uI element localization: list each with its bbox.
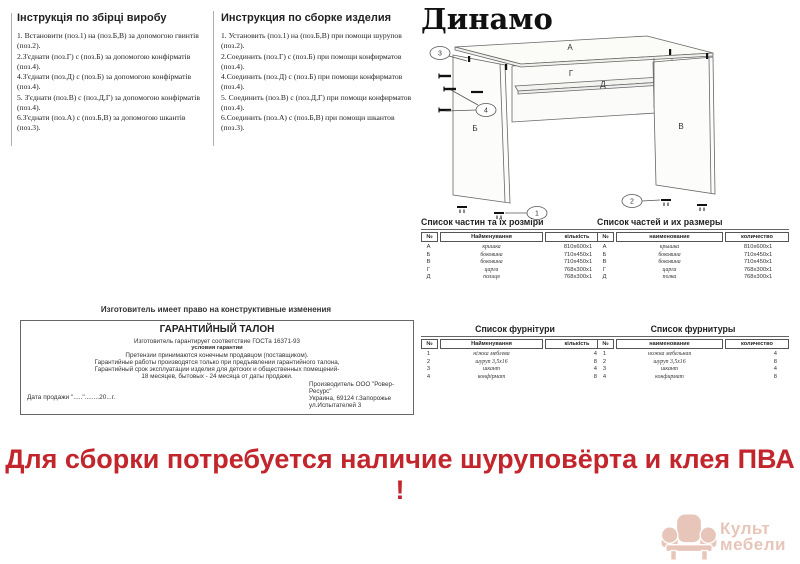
step: 6.Соединить (поз.А) с (поз.Б,В) при помо… (221, 113, 417, 134)
col-num: № (421, 232, 438, 242)
cell: В (597, 259, 612, 267)
cell: 4 (421, 374, 436, 382)
cell: конфирмат (614, 374, 725, 382)
cell: ніжка меблева (438, 351, 545, 359)
cell: боковина (438, 259, 545, 267)
cell: царга (614, 267, 725, 275)
dowel-pin-icon (505, 64, 507, 70)
manufacturer-notice: Изготовитель имеет право на конструктивн… (20, 305, 412, 314)
cell: 710х450х1 (727, 259, 789, 267)
cell: 710х450х1 (727, 252, 789, 260)
callout-2-number: 2 (630, 199, 634, 206)
foot-icon (697, 205, 707, 211)
warranty-line: Изготовитель гарантирует соответствие ГО… (21, 338, 413, 345)
callout-4-number: 4 (484, 108, 488, 115)
step: 5. З'єднати (поз.В) с (поз.Д,Г) за допом… (17, 93, 209, 114)
table-header: № Найменування кількість (421, 232, 609, 242)
table-header: № Найменування кількість (421, 339, 609, 349)
foot-icon (661, 200, 671, 206)
warranty-conditions-heading: условия гарантии (21, 345, 413, 352)
cell: боковина (614, 252, 725, 260)
cell: В (421, 259, 436, 267)
sale-date-field: Дата продажи "....."........20...г. (27, 394, 115, 401)
cell: полка (614, 274, 725, 282)
foot-icon (457, 207, 467, 213)
table-row: Г царга 768х300х1 (421, 267, 609, 275)
cell: А (421, 244, 436, 252)
brand-name: Культ мебели (720, 521, 786, 553)
table-row: 1 ножка мебельная 4 (597, 351, 789, 359)
assembly-diagram: 3 4 1 2 А Г Д Б В (420, 28, 792, 220)
panel-v (653, 57, 715, 194)
step: 1. Встановити (поз.1) на (поз.Б,В) за до… (17, 31, 209, 52)
table-row: 4 конфирмат 8 (597, 374, 789, 382)
cell: 4 (597, 374, 612, 382)
brand-name-line2: мебели (720, 537, 786, 553)
parts-table-ru-title: Список частей и их размеры (597, 217, 789, 230)
table-row: 2 шуруп 3,5х16 8 (597, 359, 789, 367)
panel-b (453, 55, 510, 203)
hardware-table-ua: Список фурнітури № Найменування кількіст… (421, 324, 609, 381)
table-row: В боковина 710х450х1 (421, 259, 609, 267)
step: 1. Установить (поз.1) на (поз.Б,В) при п… (221, 31, 417, 52)
producer-block: Производитель ООО "Ровер-Ресурс" Украина… (309, 381, 413, 409)
diagram-label-d: Д (600, 80, 606, 89)
callout-3-number: 3 (438, 51, 442, 58)
table-row: А крышка 810х600х1 (597, 244, 789, 252)
col-name: Найменування (440, 232, 543, 242)
parts-table-ru: Список частей и их размеры № наименовани… (597, 217, 789, 282)
warranty-line: Претензии принимаются конечным продавцом… (21, 352, 413, 359)
cell: шкант (614, 366, 725, 374)
step: 6.З'єднати (поз.А) с (поз.Б,В) за допомо… (17, 113, 209, 134)
table-header: № наименование количество (597, 339, 789, 349)
parts-table-ua: Список частин та їх розміри № Найменуван… (421, 217, 609, 282)
cell: боковина (438, 252, 545, 260)
armchair-icon (660, 512, 718, 562)
producer-city: Украина, 69124 г.Запорожье (309, 395, 413, 402)
cell: 1 (597, 351, 612, 359)
table-row: А кришка 810х600х1 (421, 244, 609, 252)
cell: конфірмат (438, 374, 545, 382)
cell: 2 (421, 359, 436, 367)
cell: 768х300х1 (727, 274, 789, 282)
warranty-card: ГАРАНТИЙНЫЙ ТАЛОН Изготовитель гарантиру… (20, 320, 414, 415)
cell: 810х600х1 (727, 244, 789, 252)
diagram-label-b: Б (472, 124, 477, 133)
diagram-label-a: А (567, 43, 573, 52)
cell: полиця (438, 274, 545, 282)
table-row: 4 конфірмат 8 (421, 374, 609, 382)
table-row: В боковина 710х450х1 (597, 259, 789, 267)
diagram-label-v: В (678, 122, 683, 131)
dowel-pin-icon (706, 53, 708, 59)
hardware-table-ua-title: Список фурнітури (421, 324, 609, 337)
table-row: Г царга 768х300х1 (597, 267, 789, 275)
cell: 4 (727, 366, 789, 374)
table-row: 3 шкант 4 (421, 366, 609, 374)
cell: 3 (597, 366, 612, 374)
cell: Г (421, 267, 436, 275)
cell: кришка (438, 244, 545, 252)
cell: Б (597, 252, 612, 260)
parts-table-ua-title: Список частин та їх розміри (421, 217, 609, 230)
table-row: Д полиця 768х300х1 (421, 274, 609, 282)
cell: крышка (614, 244, 725, 252)
cell: 8 (727, 374, 789, 382)
step: 2.Соединить (поз.Г) с (поз.Б) при помощи… (221, 52, 417, 73)
cell: А (597, 244, 612, 252)
table-row: 1 ніжка меблева 4 (421, 351, 609, 359)
warranty-line: Гарантийные работы производятся только п… (21, 359, 413, 366)
producer-name: Производитель ООО "Ровер-Ресурс" (309, 381, 413, 395)
table-row: 3 шкант 4 (597, 366, 789, 374)
cell: 1 (421, 351, 436, 359)
instructions-ua-title: Інструкція по збірці виробу (17, 12, 209, 24)
instructions-ua: Інструкція по збірці виробу 1. Встановит… (17, 12, 209, 134)
step: 4.З'єднати (поз.Д) с (поз.Б) за допомого… (17, 72, 209, 93)
hardware-table-ru-title: Список фурнитуры (597, 324, 789, 337)
step: 4.Соединить (поз.Д) с (поз.Б) при помощи… (221, 72, 417, 93)
step: 5. Соединить (поз.В) с (поз.Д,Г) при пом… (221, 93, 417, 114)
step: 2.З'єднати (поз.Г) с (поз.Б) за допомого… (17, 52, 209, 73)
table-row: Д полка 768х300х1 (597, 274, 789, 282)
col-name: Найменування (440, 339, 543, 349)
cell: 8 (727, 359, 789, 367)
cell: шуруп 3,5х16 (614, 359, 725, 367)
table-row: 2 шуруп 3,5х16 8 (421, 359, 609, 367)
col-name: наименование (616, 339, 723, 349)
cell: 3 (421, 366, 436, 374)
table-row: Б боковина 710х450х1 (597, 252, 789, 260)
instructions-ua-steps: 1. Встановити (поз.1) на (поз.Б,В) за до… (17, 31, 209, 134)
table-header: № наименование количество (597, 232, 789, 242)
dowel-pin-icon (669, 49, 671, 55)
cell: шкант (438, 366, 545, 374)
instruction-sheet: Інструкція по збірці виробу 1. Встановит… (0, 0, 800, 564)
col-qty: количество (725, 339, 789, 349)
cell: Д (597, 274, 612, 282)
cell: 2 (597, 359, 612, 367)
warranty-line: Гарантийный срок эксплуатации изделия дл… (21, 366, 413, 373)
cell: Г (597, 267, 612, 275)
col-name: наименование (616, 232, 723, 242)
left-margin-rule (11, 13, 12, 146)
cell: Б (421, 252, 436, 260)
table-row: Б боковина 710х450х1 (421, 252, 609, 260)
cell: боковина (614, 259, 725, 267)
callout-2-leader (642, 200, 660, 201)
assembly-warning: Для сборки потребуется наличие шуруповёр… (0, 444, 800, 506)
cell: царга (438, 267, 545, 275)
warranty-title: ГАРАНТИЙНЫЙ ТАЛОН (21, 324, 413, 335)
instructions-ru-steps: 1. Установить (поз.1) на (поз.Б,В) при п… (221, 31, 417, 134)
col-num: № (597, 339, 614, 349)
cell: 4 (727, 351, 789, 359)
col-qty: количество (725, 232, 789, 242)
dowel-pin-icon (468, 56, 470, 62)
warranty-line: 18 месяцев, бытовых - 24 месяца от даты … (21, 373, 413, 380)
column-divider-rule (213, 11, 214, 146)
cell: Д (421, 274, 436, 282)
col-num: № (421, 339, 438, 349)
instructions-ru-title: Инструкция по сборке изделия (221, 12, 417, 24)
diagram-label-g: Г (569, 69, 574, 78)
cell: шуруп 3,5х16 (438, 359, 545, 367)
col-num: № (597, 232, 614, 242)
instructions-ru: Инструкция по сборке изделия 1. Установи… (221, 12, 417, 134)
cell: 768х300х1 (727, 267, 789, 275)
producer-street: ул.Испытателей 3 (309, 402, 413, 409)
brand-logo: Культ мебели (660, 512, 786, 562)
hardware-table-ru: Список фурнитуры № наименование количест… (597, 324, 789, 381)
cell: ножка мебельная (614, 351, 725, 359)
